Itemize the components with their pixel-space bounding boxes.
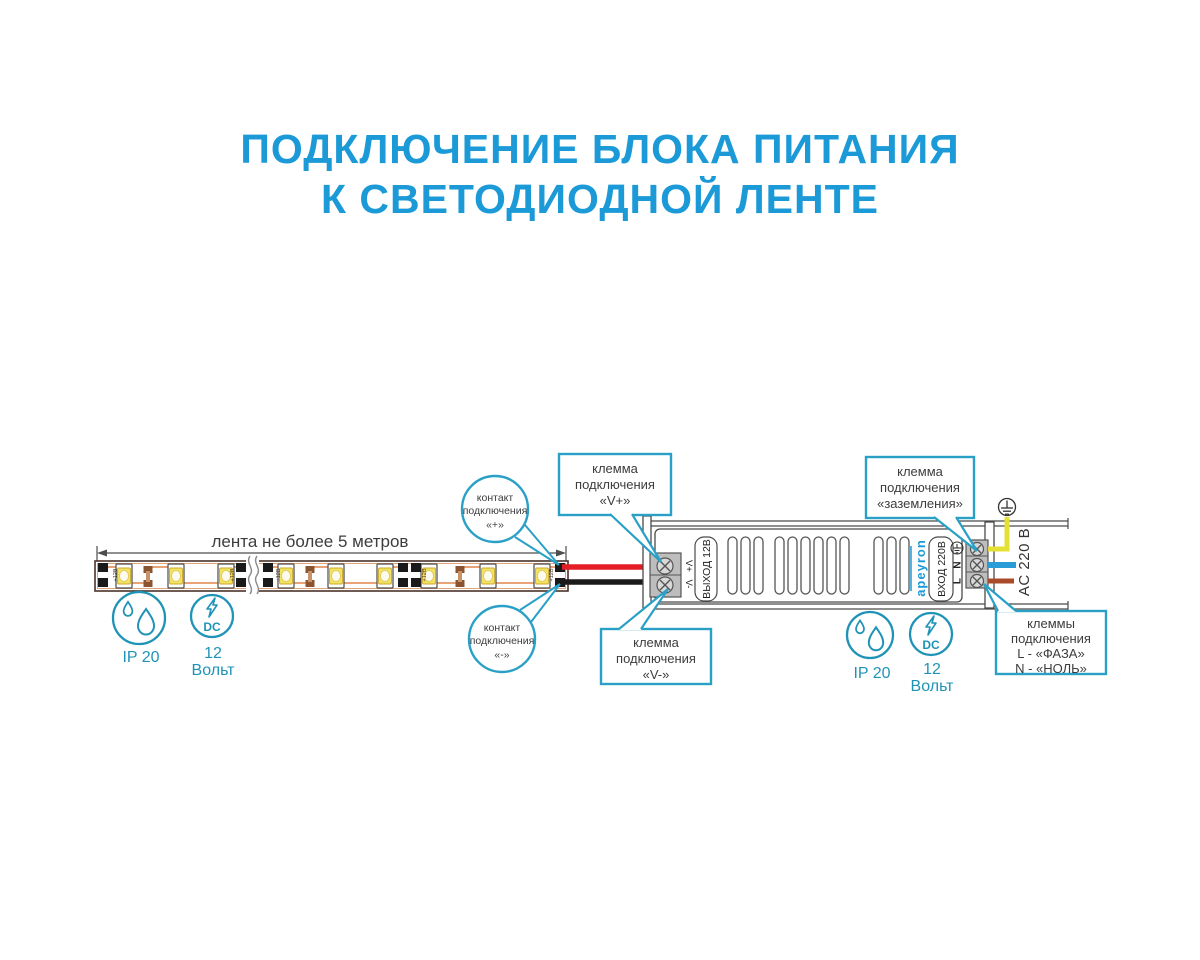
- dc-label: DC: [922, 638, 940, 652]
- svg-text:подключения: подключения: [470, 635, 535, 647]
- svg-text:подключения: подключения: [1011, 631, 1091, 646]
- dc-label: DC: [203, 620, 221, 634]
- neutral-label: N: [953, 561, 964, 568]
- strip-break-icon: [246, 556, 259, 595]
- svg-text:«заземления»: «заземления»: [877, 496, 963, 511]
- dimension-label: лента не более 5 метров: [212, 532, 409, 551]
- svg-text:«-»: «-»: [494, 649, 509, 661]
- svg-text:N - «НОЛЬ»: N - «НОЛЬ»: [1015, 661, 1087, 676]
- svg-text:клемма: клемма: [592, 461, 639, 476]
- vent-slots: [728, 537, 909, 594]
- svg-text:«+»: «+»: [486, 519, 504, 531]
- ip20-icon: [113, 592, 165, 644]
- voltage-unit: Вольт: [911, 678, 955, 695]
- callout-contact-minus: контакт подключения «-»: [469, 584, 560, 672]
- svg-text:подключения: подключения: [575, 477, 655, 492]
- svg-text:+12В: +12В: [230, 568, 236, 581]
- ground-symbol: [999, 499, 1016, 516]
- led-module: [534, 564, 550, 588]
- callout-terminal-v-minus: клемма подключения «V-»: [601, 589, 711, 684]
- svg-text:+12В: +12В: [422, 568, 428, 581]
- svg-text:L - «ФАЗА»: L - «ФАЗА»: [1017, 646, 1084, 661]
- voltage-value: 12: [204, 645, 222, 662]
- svg-text:подключения: подключения: [616, 651, 696, 666]
- led-module: [168, 564, 184, 588]
- ip20-icon: [847, 612, 893, 658]
- svg-text:контакт: контакт: [477, 492, 514, 504]
- svg-text:подключения: подключения: [463, 505, 528, 517]
- badge-group-right: IP 20 DC 12 Вольт: [847, 612, 954, 695]
- svg-text:«V-»: «V-»: [643, 667, 670, 682]
- lightning-icon: [926, 616, 936, 635]
- dimension-arrow-left: [97, 550, 107, 557]
- terminal-screw-line: [971, 575, 984, 588]
- svg-text:+12В: +12В: [549, 568, 555, 581]
- line-label: L: [953, 578, 964, 584]
- svg-text:«V+»: «V+»: [600, 493, 631, 508]
- output-label: ВЫХОД 12В: [701, 539, 713, 599]
- input-label: ВХОД 220В: [936, 541, 948, 597]
- led-module: [377, 564, 393, 588]
- v-minus-label: V-: [683, 580, 694, 589]
- callout-terminal-v-plus: клемма подключения «V+»: [559, 454, 671, 562]
- dimension-arrow-right: [556, 550, 566, 557]
- svg-text:клеммы: клеммы: [1027, 616, 1075, 631]
- svg-text:+12В: +12В: [276, 568, 282, 581]
- terminal-screw-neutral: [971, 559, 984, 572]
- svg-text:контакт: контакт: [484, 622, 521, 634]
- svg-text:клемма: клемма: [633, 635, 680, 650]
- ip20-label: IP 20: [853, 665, 890, 682]
- callout-terminal-line-neutral: клеммы подключения L - «ФАЗА» N - «НОЛЬ»: [984, 584, 1106, 676]
- ip20-label: IP 20: [122, 649, 159, 666]
- wiring-diagram: лента не более 5 метров: [0, 0, 1200, 960]
- infographic: ПОДКЛЮЧЕНИЕ БЛОКА ПИТАНИЯ К СВЕТОДИОДНОЙ…: [0, 0, 1200, 960]
- brand-logo: apeyron: [913, 539, 928, 597]
- svg-text:клемма: клемма: [897, 464, 944, 479]
- led-modules: [116, 564, 550, 588]
- voltage-value: 12: [923, 661, 941, 678]
- lightning-icon: [207, 598, 217, 617]
- voltage-unit: Вольт: [192, 662, 236, 679]
- led-module: [480, 564, 496, 588]
- dc12-icon: DC: [910, 613, 952, 655]
- callout-contact-plus: контакт подключения «+»: [462, 476, 559, 565]
- svg-text:+12В: +12В: [113, 568, 119, 581]
- led-module: [328, 564, 344, 588]
- ac-terminal-block: [966, 540, 988, 588]
- badge-group-left: IP 20 DC 12 Вольт: [113, 592, 235, 679]
- v-plus-label: V+: [683, 560, 694, 572]
- dc12-icon: DC: [191, 595, 233, 637]
- ac-voltage-label: AC 220 В: [1016, 528, 1033, 596]
- svg-text:подключения: подключения: [880, 480, 960, 495]
